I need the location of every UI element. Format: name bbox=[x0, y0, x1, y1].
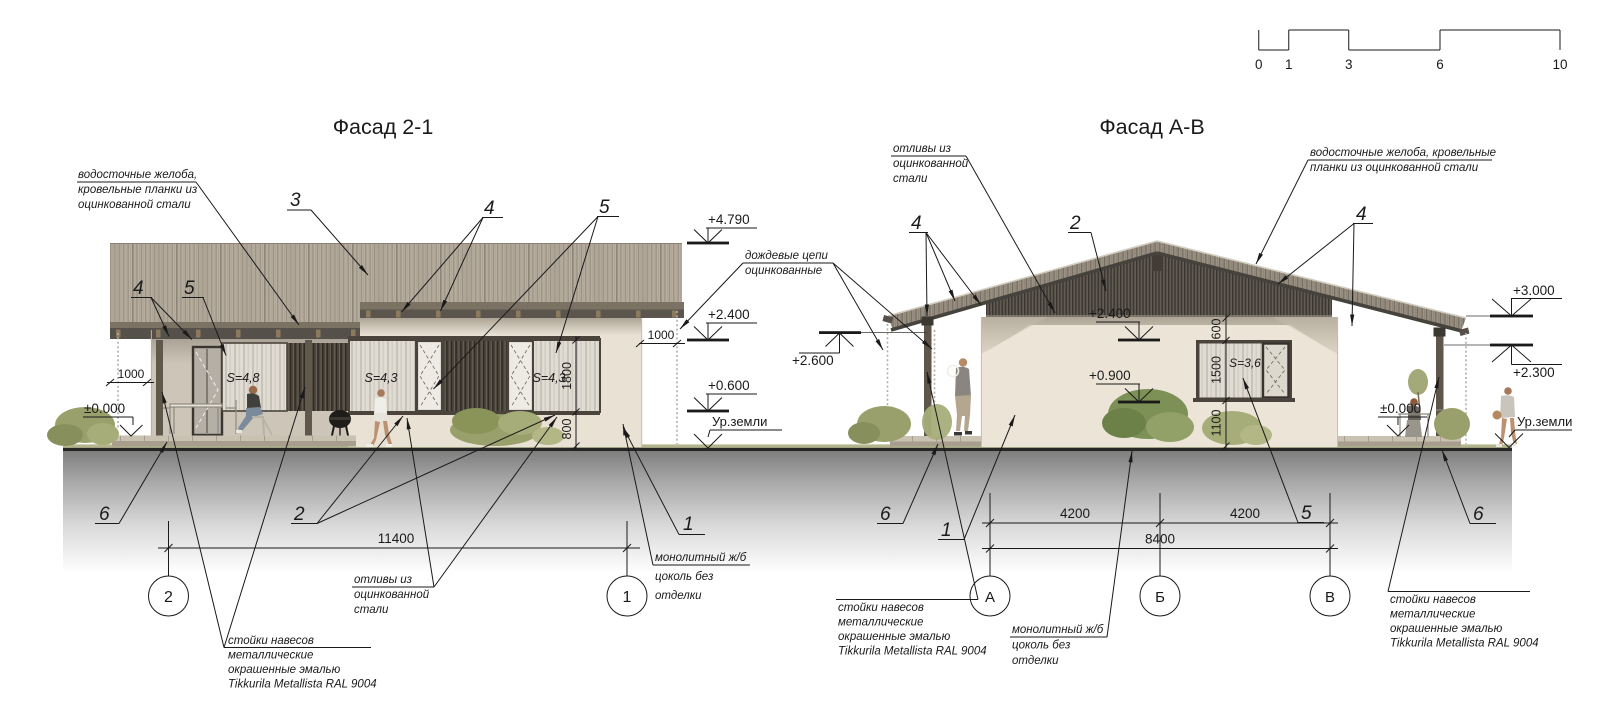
svg-text:1: 1 bbox=[1285, 57, 1293, 72]
svg-text:±0.000: ±0.000 bbox=[84, 401, 125, 416]
svg-text:4: 4 bbox=[1356, 204, 1367, 225]
svg-text:окрашенные эмалью: окрашенные эмалью bbox=[228, 664, 341, 676]
svg-text:цоколь без: цоколь без bbox=[655, 571, 714, 583]
svg-text:1000: 1000 bbox=[648, 328, 675, 342]
svg-text:стали: стали bbox=[354, 604, 389, 616]
svg-text:кровельные планки из: кровельные планки из bbox=[78, 184, 198, 196]
svg-text:10: 10 bbox=[1552, 57, 1567, 72]
svg-text:+2.300: +2.300 bbox=[1513, 365, 1555, 380]
svg-text:+2.600: +2.600 bbox=[792, 353, 834, 368]
svg-text:+3.000: +3.000 bbox=[1513, 283, 1555, 298]
svg-text:±0.000: ±0.000 bbox=[1380, 401, 1421, 416]
svg-text:6: 6 bbox=[99, 504, 110, 525]
svg-text:дождевые цепи: дождевые цепи bbox=[745, 250, 829, 262]
svg-text:1: 1 bbox=[941, 520, 952, 541]
svg-text:оцинкованные: оцинкованные bbox=[745, 265, 822, 277]
svg-text:6: 6 bbox=[880, 504, 891, 525]
svg-text:4: 4 bbox=[133, 278, 144, 299]
svg-text:+0.900: +0.900 bbox=[1089, 368, 1131, 383]
svg-text:отделки: отделки bbox=[655, 590, 702, 602]
svg-text:Фасад А-В: Фасад А-В bbox=[1099, 115, 1204, 139]
svg-text:стали: стали bbox=[893, 173, 928, 185]
svg-text:6: 6 bbox=[1473, 504, 1484, 525]
svg-text:стойки навесов: стойки навесов bbox=[1390, 594, 1476, 606]
svg-text:отделки: отделки bbox=[1012, 655, 1059, 667]
svg-text:3: 3 bbox=[1345, 57, 1353, 72]
svg-text:оцинкованной стали: оцинкованной стали bbox=[78, 199, 191, 211]
svg-text:600: 600 bbox=[1210, 319, 1224, 340]
svg-text:окрашенные эмалью: окрашенные эмалью bbox=[838, 631, 951, 643]
svg-text:1100: 1100 bbox=[1210, 410, 1224, 437]
svg-text:Фасад 2-1: Фасад 2-1 bbox=[333, 115, 434, 139]
svg-text:монолитный ж/б: монолитный ж/б bbox=[1012, 624, 1104, 636]
svg-text:1000: 1000 bbox=[118, 367, 145, 381]
svg-text:1: 1 bbox=[683, 514, 694, 535]
svg-text:В: В bbox=[1325, 589, 1335, 606]
svg-text:+2.400: +2.400 bbox=[708, 307, 750, 322]
svg-text:4: 4 bbox=[911, 213, 922, 234]
svg-text:планки из оцинкованной стали: планки из оцинкованной стали bbox=[1310, 162, 1479, 174]
svg-text:5: 5 bbox=[184, 278, 195, 299]
svg-text:S=4,3: S=4,3 bbox=[364, 371, 397, 385]
svg-text:оцинкованной: оцинкованной bbox=[893, 158, 969, 170]
svg-text:стойки навесов: стойки навесов bbox=[228, 635, 314, 647]
svg-text:+4.790: +4.790 bbox=[708, 212, 750, 227]
svg-text:5: 5 bbox=[1301, 503, 1312, 524]
svg-text:монолитный ж/б: монолитный ж/б bbox=[655, 552, 747, 564]
svg-text:+0.600: +0.600 bbox=[708, 378, 750, 393]
svg-text:Ур.земли: Ур.земли bbox=[712, 414, 767, 429]
svg-text:4200: 4200 bbox=[1060, 506, 1090, 521]
svg-text:4200: 4200 bbox=[1230, 506, 1260, 521]
svg-text:1500: 1500 bbox=[1210, 356, 1224, 384]
svg-text:водосточные желоба,: водосточные желоба, bbox=[78, 169, 197, 181]
svg-text:800: 800 bbox=[560, 419, 574, 440]
svg-text:Ур.земли: Ур.земли bbox=[1517, 414, 1572, 429]
svg-text:металлические: металлические bbox=[228, 650, 313, 662]
svg-text:А: А bbox=[985, 589, 995, 606]
svg-text:5: 5 bbox=[599, 197, 610, 218]
svg-text:0: 0 bbox=[1255, 57, 1263, 72]
svg-text:3: 3 bbox=[290, 190, 301, 211]
svg-text:Tikkurila Metallista RAL 9004: Tikkurila Metallista RAL 9004 bbox=[228, 679, 377, 691]
svg-text:отливы из: отливы из bbox=[354, 574, 413, 586]
svg-text:металлические: металлические bbox=[1390, 609, 1475, 621]
svg-text:Tikkurila Metallista RAL 9004: Tikkurila Metallista RAL 9004 bbox=[838, 646, 987, 658]
svg-text:2: 2 bbox=[164, 589, 173, 606]
svg-text:11400: 11400 bbox=[378, 531, 415, 546]
svg-text:4: 4 bbox=[484, 198, 495, 219]
svg-text:2: 2 bbox=[293, 504, 305, 525]
svg-text:2: 2 bbox=[1069, 213, 1081, 234]
svg-text:Б: Б bbox=[1155, 589, 1165, 606]
svg-text:6: 6 bbox=[1436, 57, 1444, 72]
svg-text:металлические: металлические bbox=[838, 617, 923, 629]
svg-text:S=3,6: S=3,6 bbox=[1229, 356, 1261, 370]
svg-text:Tikkurila Metallista RAL 9004: Tikkurila Metallista RAL 9004 bbox=[1390, 638, 1539, 650]
svg-text:отливы из: отливы из bbox=[893, 143, 952, 155]
svg-text:цоколь без: цоколь без bbox=[1012, 640, 1071, 652]
svg-text:S=4,8: S=4,8 bbox=[226, 371, 259, 385]
svg-text:S=4,3: S=4,3 bbox=[532, 371, 565, 385]
svg-text:оцинкованной: оцинкованной bbox=[354, 589, 430, 601]
svg-text:стойки навесов: стойки навесов bbox=[838, 602, 924, 614]
svg-text:окрашенные эмалью: окрашенные эмалью bbox=[1390, 623, 1503, 635]
svg-text:+2.400: +2.400 bbox=[1089, 306, 1131, 321]
svg-text:водосточные желоба, кровельные: водосточные желоба, кровельные bbox=[1310, 147, 1496, 159]
svg-text:1: 1 bbox=[623, 589, 632, 606]
